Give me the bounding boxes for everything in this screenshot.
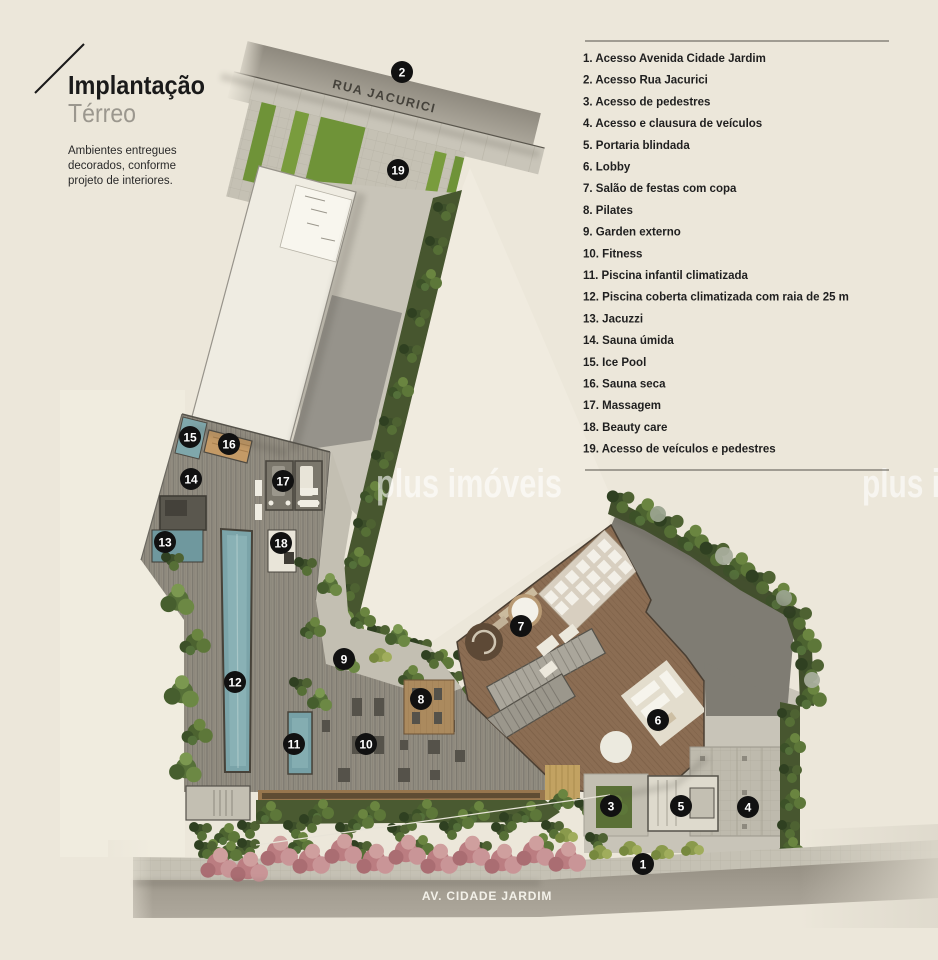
svg-text:13. Jacuzzi: 13. Jacuzzi [583,313,643,325]
svg-text:15. Ice Pool: 15. Ice Pool [583,357,646,369]
svg-text:16: 16 [222,438,236,452]
svg-text:2: 2 [399,66,406,80]
svg-text:5: 5 [678,800,685,814]
svg-text:1: 1 [640,858,647,872]
svg-text:3. Acesso de pedestres: 3. Acesso de pedestres [583,96,710,108]
svg-text:Térreo: Térreo [68,98,136,128]
svg-text:15: 15 [183,431,197,445]
svg-text:2. Acesso Rua Jacurici: 2. Acesso Rua Jacurici [583,75,708,87]
svg-text:19: 19 [391,164,405,178]
svg-text:13: 13 [158,536,172,550]
svg-text:1. Acesso Avenida Cidade Jardi: 1. Acesso Avenida Cidade Jardim [583,53,766,65]
svg-text:6. Lobby: 6. Lobby [583,162,631,174]
svg-text:8: 8 [418,693,425,707]
svg-text:4. Acesso e clausura de veícul: 4. Acesso e clausura de veículos [583,118,762,130]
svg-text:9. Garden externo: 9. Garden externo [583,227,681,239]
svg-text:12: 12 [228,676,242,690]
svg-text:17: 17 [276,475,290,489]
svg-text:14. Sauna úmida: 14. Sauna úmida [583,335,674,347]
svg-text:12. Piscina coberta climatizad: 12. Piscina coberta climatizada com raia… [583,292,849,304]
svg-text:19. Acesso de veículos e pedes: 19. Acesso de veículos e pedestres [583,444,776,456]
svg-text:projeto de interiores.: projeto de interiores. [68,175,173,187]
svg-text:17. Massagem: 17. Massagem [583,400,661,412]
svg-text:decorados, conforme: decorados, conforme [68,160,176,172]
svg-text:3: 3 [608,800,615,814]
svg-text:7: 7 [518,620,525,634]
svg-text:7. Salão de festas com copa: 7. Salão de festas com copa [583,183,737,195]
svg-text:6: 6 [655,714,662,728]
svg-text:16. Sauna seca: 16. Sauna seca [583,379,666,391]
svg-text:14: 14 [184,473,198,487]
svg-text:11: 11 [288,738,301,752]
svg-text:4: 4 [745,801,752,815]
svg-text:plus imóveis: plus imóveis [376,462,562,506]
svg-text:11. Piscina infantil climatiza: 11. Piscina infantil climatizada [583,270,749,282]
svg-text:10. Fitness: 10. Fitness [583,248,642,260]
svg-text:5. Portaria blindada: 5. Portaria blindada [583,140,690,152]
svg-text:18. Beauty care: 18. Beauty care [583,422,667,434]
svg-text:18: 18 [274,537,288,551]
svg-text:10: 10 [359,738,373,752]
svg-text:Ambientes entregues: Ambientes entregues [68,145,177,157]
svg-text:Implantação: Implantação [68,70,205,100]
svg-text:8. Pilates: 8. Pilates [583,205,633,217]
svg-text:plus i: plus i [862,462,938,506]
svg-text:9: 9 [341,653,348,667]
svg-text:AV. CIDADE JARDIM: AV. CIDADE JARDIM [422,889,552,903]
